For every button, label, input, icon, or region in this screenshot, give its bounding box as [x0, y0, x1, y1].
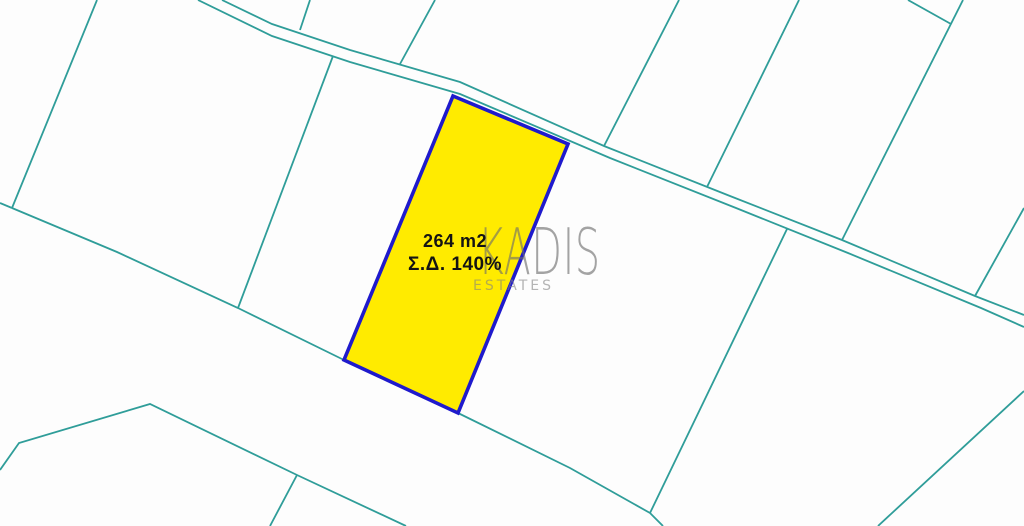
boundary-line-main-lower-boundary — [12, 208, 650, 513]
boundary-line-southeast-divider — [878, 391, 1024, 526]
boundary-line-southwest-branch — [270, 475, 297, 526]
parcel-map-svg — [0, 0, 1024, 526]
boundary-line-north-divider-1 — [300, 0, 310, 30]
boundary-line-southwest-ridge — [0, 404, 406, 526]
boundary-line-north-corner-divider — [908, 0, 951, 24]
boundary-line-parcel-divider-right — [650, 229, 787, 513]
boundary-line-road-upper-edge — [222, 0, 1024, 315]
boundary-line-west-parcel-edge — [12, 0, 97, 208]
highlighted-parcel — [344, 96, 568, 413]
boundary-line-lower-boundary-exit — [650, 513, 663, 526]
boundary-line-parcel-divider-left — [238, 56, 333, 308]
boundary-line-east-divider — [975, 208, 1024, 296]
boundary-line-west-edge-stub — [0, 203, 12, 208]
boundary-line-north-divider-5 — [842, 0, 963, 240]
cadastral-map: KADIS ESTATES 264 m2 Σ.Δ. 140% — [0, 0, 1024, 526]
boundary-line-north-divider-3 — [604, 0, 679, 146]
boundary-line-north-divider-2 — [400, 0, 435, 64]
boundary-line-north-divider-4 — [707, 0, 799, 187]
boundary-line-road-lower-edge — [198, 0, 1024, 327]
